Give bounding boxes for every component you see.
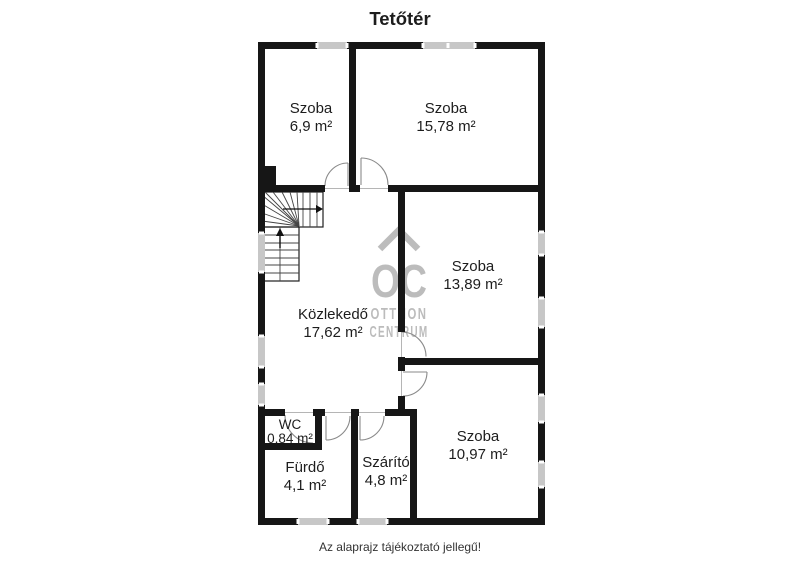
wall-room3-room4 <box>405 358 538 365</box>
wall-furdo-szarito <box>351 416 358 525</box>
window <box>317 42 347 49</box>
room-label-szoba-2: Szoba 15,78 m² <box>416 100 475 135</box>
svg-text:Szoba: Szoba <box>425 100 468 117</box>
wall-corridor-south <box>351 409 359 416</box>
window <box>258 336 265 367</box>
floor-plan: Tetőtér OC OTTHON CENTRUM <box>0 0 800 565</box>
svg-text:15,78 m²: 15,78 m² <box>416 118 475 135</box>
wall-between-top-rooms <box>349 49 356 192</box>
door-arc-szoba1 <box>325 163 348 186</box>
wall-top-rooms-bottom <box>349 185 360 192</box>
disclaimer-note: Az alaprajz tájékoztató jellegű! <box>319 540 481 554</box>
wall-outer-left <box>258 42 265 525</box>
window <box>538 232 545 255</box>
svg-text:6,9 m²: 6,9 m² <box>290 118 333 135</box>
svg-text:Fürdő: Fürdő <box>285 459 324 476</box>
page-title: Tetőtér <box>369 8 430 29</box>
room-label-szoba-3: Szoba 13,89 m² <box>443 258 502 293</box>
window <box>258 233 265 272</box>
room-label-szoba-4: Szoba 10,97 m² <box>448 428 507 463</box>
wall-szarito-szoba <box>410 409 417 525</box>
stair-direction-arrow-up <box>276 228 284 248</box>
room-label-szarito: Szárító 4,8 m² <box>362 454 410 489</box>
svg-text:17,62 m²: 17,62 m² <box>303 324 362 341</box>
svg-text:Szoba: Szoba <box>290 100 333 117</box>
wall-outer-top <box>258 42 545 49</box>
svg-text:0,84 m²: 0,84 m² <box>267 431 313 446</box>
window <box>298 518 328 525</box>
room-label-furdo: Fürdő 4,1 m² <box>284 459 327 494</box>
floor-plan-page: Tetőtér OC OTTHON CENTRUM <box>0 0 800 565</box>
svg-text:WC: WC <box>279 417 302 432</box>
svg-text:10,97 m²: 10,97 m² <box>448 446 507 463</box>
svg-text:Szoba: Szoba <box>452 258 495 275</box>
room-label-kozlekedo: Közlekedő 17,62 m² <box>298 306 368 341</box>
svg-text:4,8 m²: 4,8 m² <box>365 472 408 489</box>
wall-corridor-east <box>398 192 405 332</box>
window <box>538 462 545 487</box>
chimney-block <box>258 166 276 187</box>
svg-text:Közlekedő: Közlekedő <box>298 306 368 323</box>
door-arc-szoba4 <box>403 372 427 396</box>
wall-top-rooms-bottom <box>388 185 538 192</box>
room-label-wc: WC 0,84 m² <box>267 417 313 446</box>
door-arc-szarito <box>360 416 384 440</box>
window <box>538 298 545 327</box>
door-arc-szoba2 <box>361 158 388 185</box>
wall-outer-right <box>538 42 545 525</box>
door-arc-furdo <box>326 416 350 440</box>
svg-text:Szoba: Szoba <box>457 428 500 445</box>
wall-corridor-east <box>398 357 405 371</box>
wall-corridor-south <box>265 409 285 416</box>
staircase <box>262 192 323 281</box>
room-label-szoba-1: Szoba 6,9 m² <box>290 100 333 135</box>
svg-text:13,89 m²: 13,89 m² <box>443 276 502 293</box>
window <box>258 384 265 405</box>
svg-text:Szárító: Szárító <box>362 454 410 471</box>
window <box>358 518 387 525</box>
svg-text:4,1 m²: 4,1 m² <box>284 477 327 494</box>
window <box>538 395 545 422</box>
